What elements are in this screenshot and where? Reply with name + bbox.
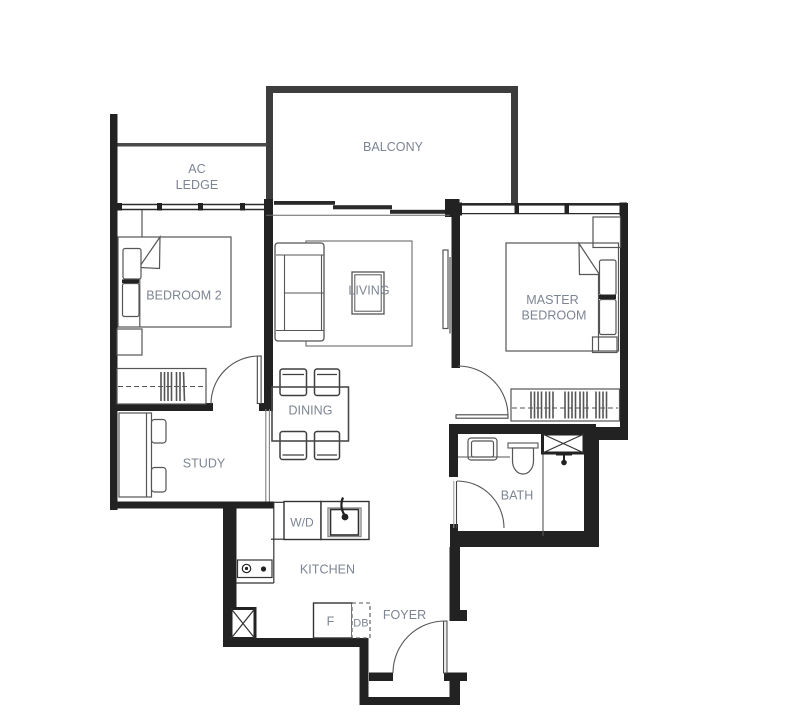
svg-text:AC: AC	[188, 162, 205, 176]
svg-text:KITCHEN: KITCHEN	[300, 563, 355, 577]
svg-text:LIVING: LIVING	[348, 284, 389, 298]
svg-text:BALCONY: BALCONY	[363, 140, 424, 154]
svg-text:BATH: BATH	[501, 489, 534, 503]
svg-text:MASTER: MASTER	[526, 293, 578, 307]
svg-text:FOYER: FOYER	[383, 608, 426, 622]
svg-text:F: F	[327, 615, 335, 629]
svg-text:W/D: W/D	[290, 516, 314, 530]
svg-text:BEDROOM: BEDROOM	[522, 309, 587, 323]
svg-text:LEDGE: LEDGE	[176, 178, 219, 192]
svg-text:STUDY: STUDY	[183, 457, 226, 471]
svg-text:DINING: DINING	[288, 404, 332, 418]
svg-text:BEDROOM 2: BEDROOM 2	[146, 289, 221, 303]
svg-text:DB: DB	[353, 618, 368, 630]
